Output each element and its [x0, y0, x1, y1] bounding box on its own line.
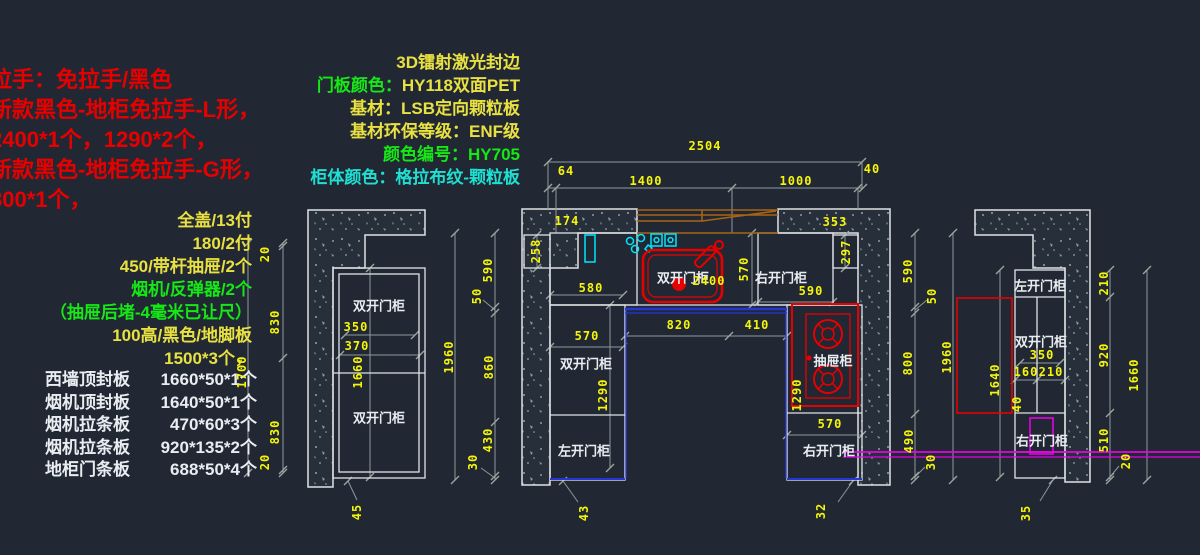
dim-350: 350	[1030, 348, 1055, 362]
panel-name: 西墙顶封板	[45, 365, 130, 388]
note-line: 颜色编号：HY705	[240, 140, 520, 163]
dim-570: 570	[737, 257, 751, 282]
note-line: 门板颜色：HY118双面PET	[240, 71, 520, 94]
dim-1290: 1290	[596, 379, 610, 412]
tall-cyan-rect	[585, 235, 595, 262]
dim-1660: 1660	[1127, 359, 1141, 392]
hardware-notes: 全盖/13付 180/2付 450/带杆抽屉/2个 烟机/反弹器/2个 （抽屉后…	[32, 206, 252, 367]
dim-590: 590	[901, 259, 915, 284]
panel-row: 烟机拉条板470*60*3个	[45, 410, 257, 433]
dim-30: 30	[924, 454, 938, 470]
note-line: 100高/黑色/地脚板	[32, 321, 252, 344]
note-line: 3D镭射激光封边	[240, 48, 520, 71]
dim-20: 20	[258, 454, 272, 470]
dim-258: 258	[529, 239, 543, 264]
note-value: HY118双面PET	[402, 76, 520, 95]
note-line: 1500*3个，	[32, 344, 252, 367]
note-line: 基材环保等级：ENF级	[240, 117, 520, 140]
red-dot	[807, 356, 812, 361]
cabinet-label: 右开门柜	[803, 441, 855, 460]
dim-32: 32	[814, 503, 828, 519]
dim-210: 210	[1039, 365, 1064, 379]
panel-row: 西墙顶封板1660*50*1个	[45, 365, 257, 388]
panel-spec: 470*60*3个	[170, 410, 257, 433]
note-line: 烟机/反弹器/2个	[32, 275, 252, 298]
panel-row: 烟机拉条板920*135*2个	[45, 433, 257, 456]
panel-spec: 1640*50*1个	[161, 388, 257, 411]
cabinet-label: 双开门柜	[353, 296, 405, 315]
dim-830: 830	[268, 310, 282, 335]
dim-40: 40	[1010, 396, 1024, 412]
dim-1700: 1700	[235, 356, 249, 389]
cad-viewport: 拉手：免拉手/黑色 新款黑色-地柜免拉手-L形， 2400*1个，1290*2个…	[0, 0, 1200, 555]
dim-40: 40	[864, 162, 880, 176]
dim-1000: 1000	[780, 174, 813, 188]
material-spec-notes: 3D镭射激光封边 门板颜色：HY118双面PET 基材：LSB定向颗粒板 基材环…	[240, 48, 520, 186]
dim-30: 30	[466, 454, 480, 470]
cabinet-label: 右开门柜	[1016, 431, 1068, 450]
dim-20: 20	[1119, 453, 1133, 469]
soffit-lines	[637, 210, 778, 233]
dim-370: 370	[345, 339, 370, 353]
dim-35: 35	[1019, 505, 1033, 521]
panel-name: 烟机顶封板	[45, 388, 130, 411]
dim-410: 410	[745, 318, 770, 332]
dim-174: 174	[555, 214, 580, 228]
cabinet-label: 双开门柜	[353, 408, 405, 427]
dim-50: 50	[925, 288, 939, 304]
dim-1660: 1660	[351, 356, 365, 389]
note-line: 全盖/13付	[32, 206, 252, 229]
panel-spec: 920*135*2个	[161, 433, 257, 456]
panel-name: 地柜门条板	[45, 455, 130, 478]
dim-830: 830	[268, 420, 282, 445]
dim-2504: 2504	[689, 139, 722, 153]
dim-490: 490	[902, 429, 916, 454]
dim-45: 45	[350, 504, 364, 520]
red-highlight-rect	[957, 298, 1012, 413]
dim-1960: 1960	[940, 341, 954, 374]
dim-580: 580	[579, 281, 604, 295]
dim-297: 297	[839, 240, 853, 265]
dim-510: 510	[1097, 428, 1111, 453]
note-label: 柜体颜色：	[310, 168, 395, 187]
dim-210: 210	[1097, 271, 1111, 296]
dim-2400: 2400	[693, 274, 726, 288]
dim-800: 800	[901, 351, 915, 376]
panel-cut-list: 西墙顶封板1660*50*1个 烟机顶封板1640*50*1个 烟机拉条板470…	[45, 365, 257, 478]
dim-920: 920	[1097, 343, 1111, 368]
dim-820: 820	[667, 318, 692, 332]
panel-name: 烟机拉条板	[45, 433, 130, 456]
dim-20: 20	[258, 246, 272, 262]
note-label: 门板颜色：	[317, 76, 402, 95]
dim-64: 64	[558, 164, 574, 178]
note-value: 格拉布纹-颗粒板	[395, 168, 520, 187]
dim-1640: 1640	[988, 364, 1002, 397]
dim-1290: 1290	[790, 379, 804, 412]
note-line: 180/2付	[32, 229, 252, 252]
dim-590: 590	[799, 284, 824, 298]
cyan-symbols	[585, 234, 676, 262]
dim-570: 570	[575, 329, 600, 343]
note-line: （抽屉后堵-4毫米已让尺）	[32, 298, 252, 321]
cabinet-label: 双开门柜	[560, 354, 612, 373]
dim-1960: 1960	[442, 341, 456, 374]
panel-spec: 688*50*4个	[170, 455, 257, 478]
panel-row: 烟机顶封板1640*50*1个	[45, 388, 257, 411]
note-line: 450/带杆抽屉/2个	[32, 252, 252, 275]
dim-160: 160	[1014, 365, 1039, 379]
panel-name: 烟机拉条板	[45, 410, 130, 433]
cabinet-label: 左开门柜	[1014, 276, 1066, 295]
dim-50: 50	[470, 288, 484, 304]
panel-row: 地柜门条板688*50*4个	[45, 455, 257, 478]
dim-430: 430	[481, 428, 495, 453]
dim-43: 43	[577, 505, 591, 521]
dim-350: 350	[344, 320, 369, 334]
dim-1400: 1400	[630, 174, 663, 188]
dim-570: 570	[818, 417, 843, 431]
dim-590: 590	[481, 258, 495, 283]
note-line: 柜体颜色：格拉布纹-颗粒板	[240, 163, 520, 186]
cabinet-label: 左开门柜	[558, 441, 610, 460]
dim-860: 860	[482, 355, 496, 380]
note-line: 基材：LSB定向颗粒板	[240, 94, 520, 117]
dim-353: 353	[823, 215, 848, 229]
cabinet-label: 抽屉柜	[813, 351, 852, 370]
